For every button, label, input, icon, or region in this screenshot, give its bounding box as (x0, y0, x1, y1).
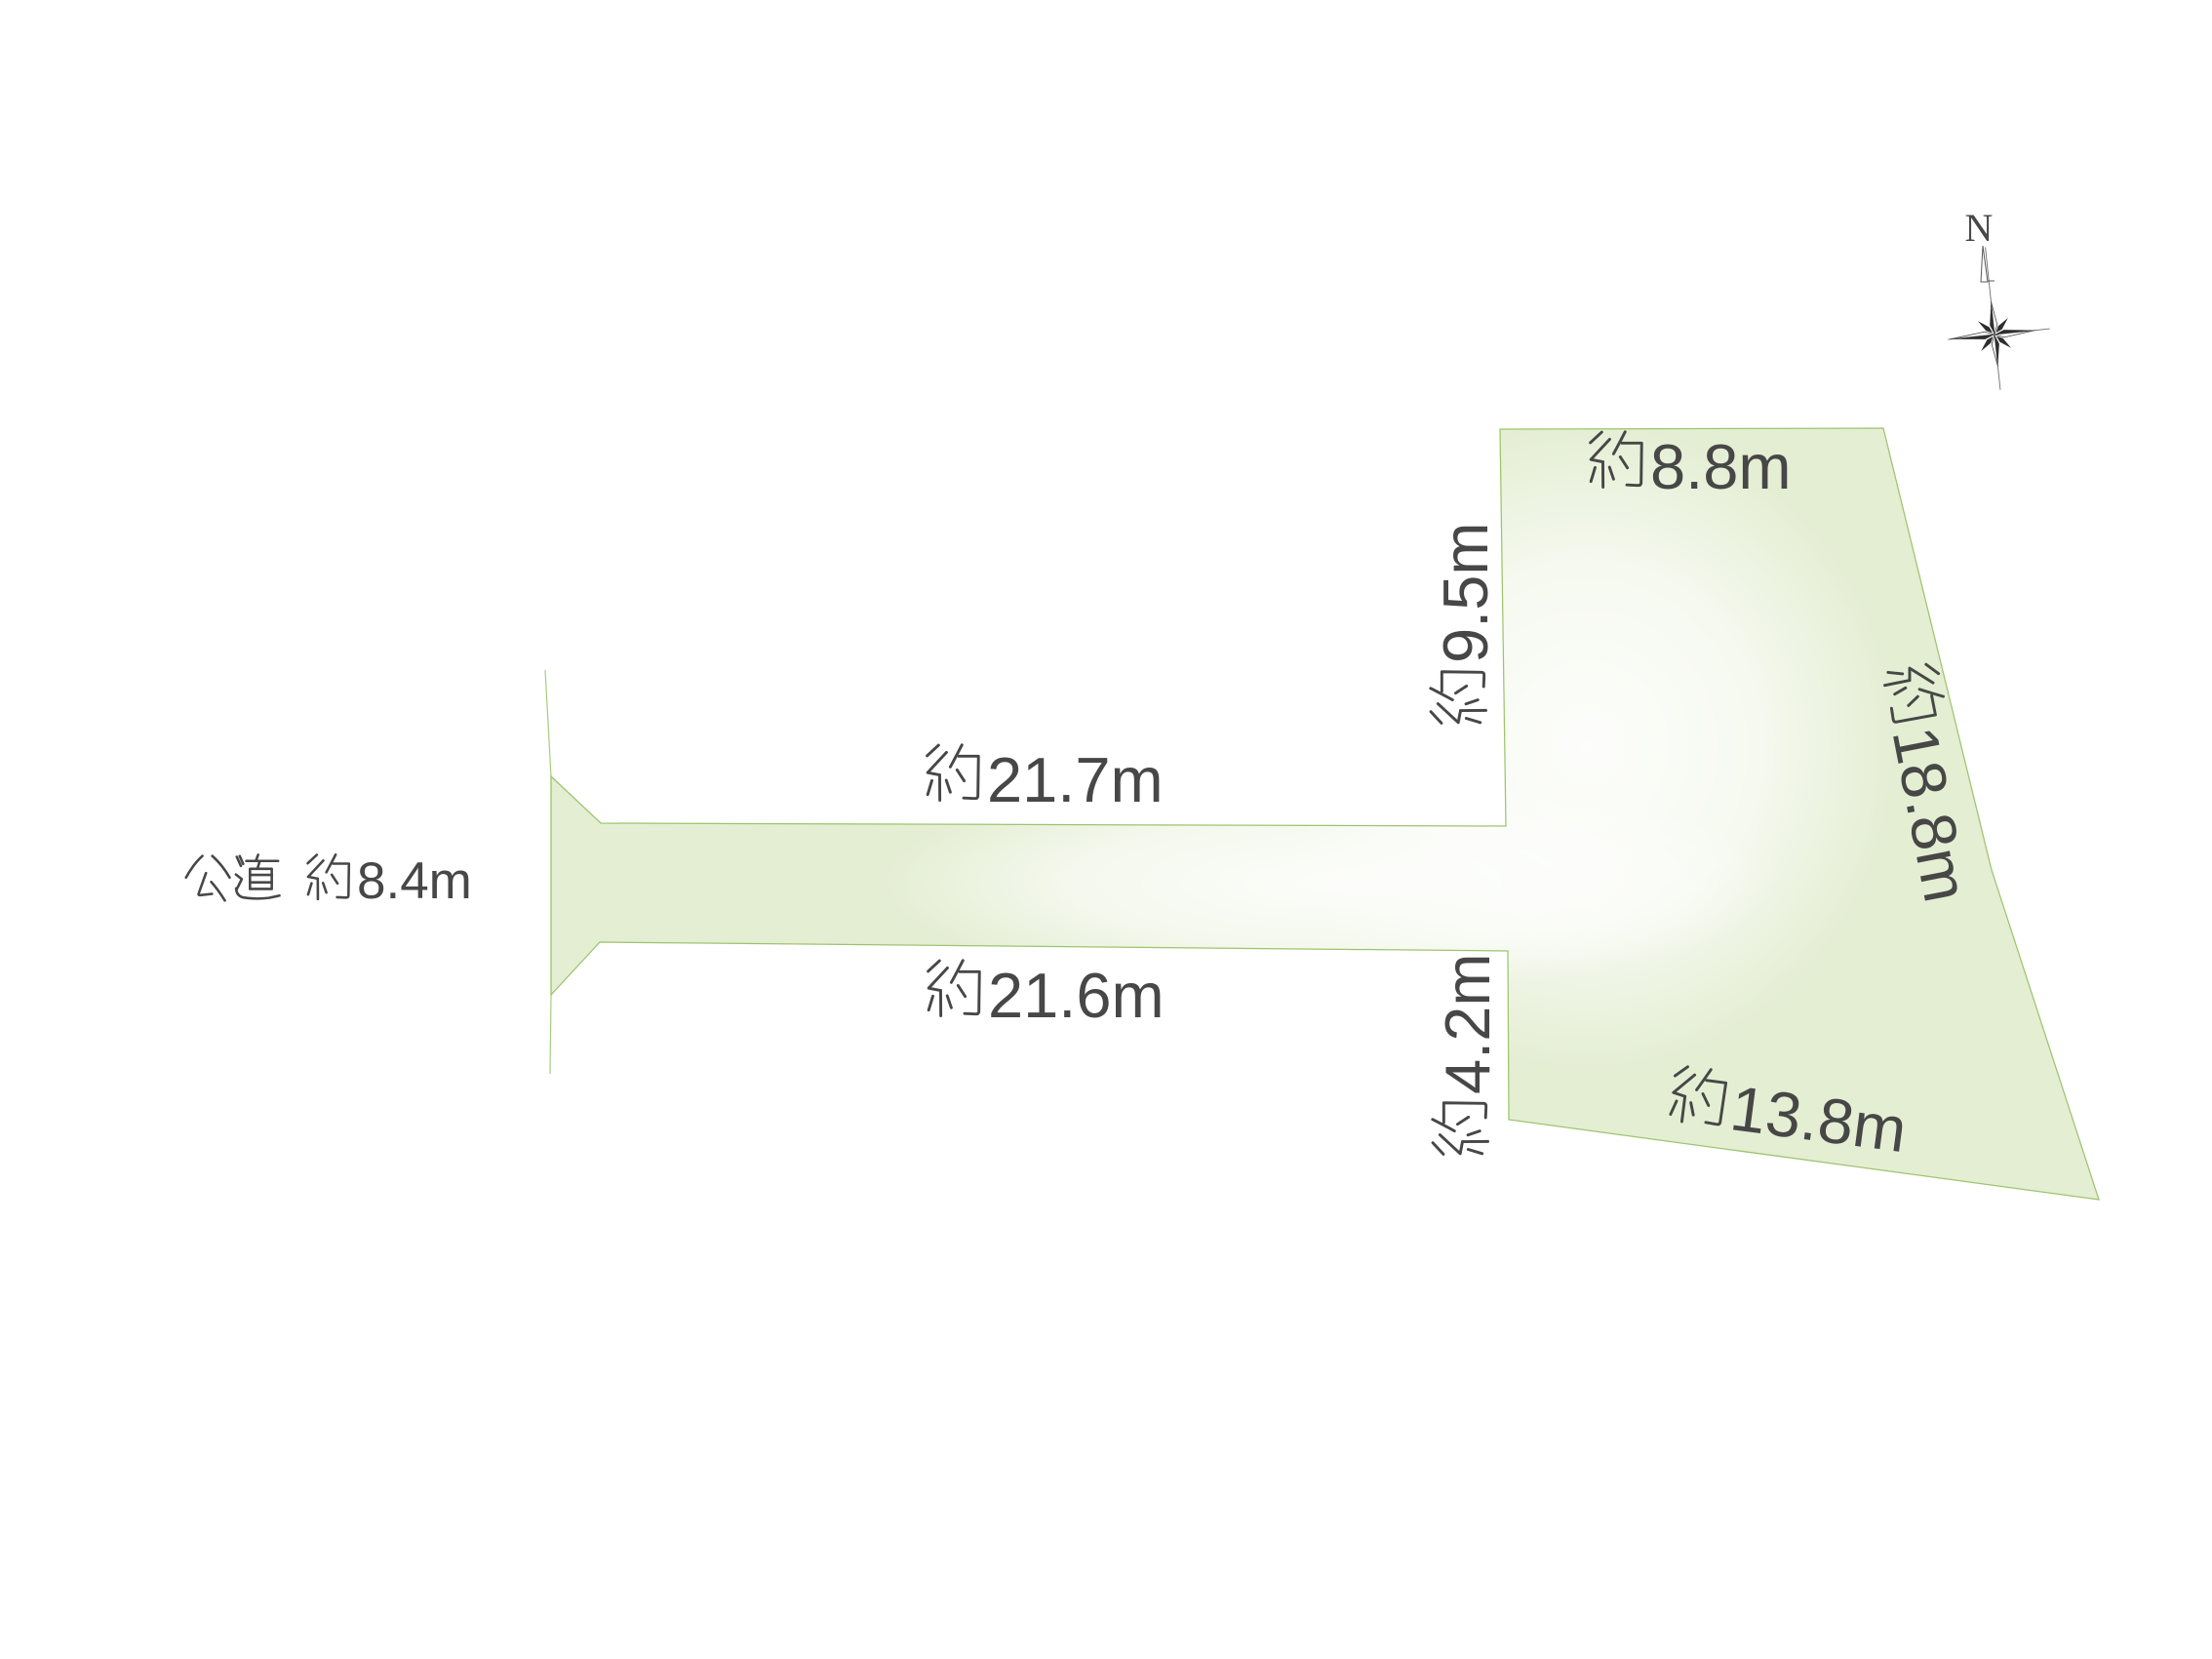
svg-text:9.5m: 9.5m (1430, 522, 1501, 663)
svg-text:4.2m: 4.2m (1432, 953, 1503, 1094)
svg-text:8.8m: 8.8m (1650, 431, 1792, 502)
svg-text:21.6m: 21.6m (988, 960, 1165, 1031)
svg-text:N: N (1965, 206, 1994, 250)
svg-text:8.4m: 8.4m (357, 852, 472, 910)
svg-text:21.7m: 21.7m (987, 744, 1164, 815)
